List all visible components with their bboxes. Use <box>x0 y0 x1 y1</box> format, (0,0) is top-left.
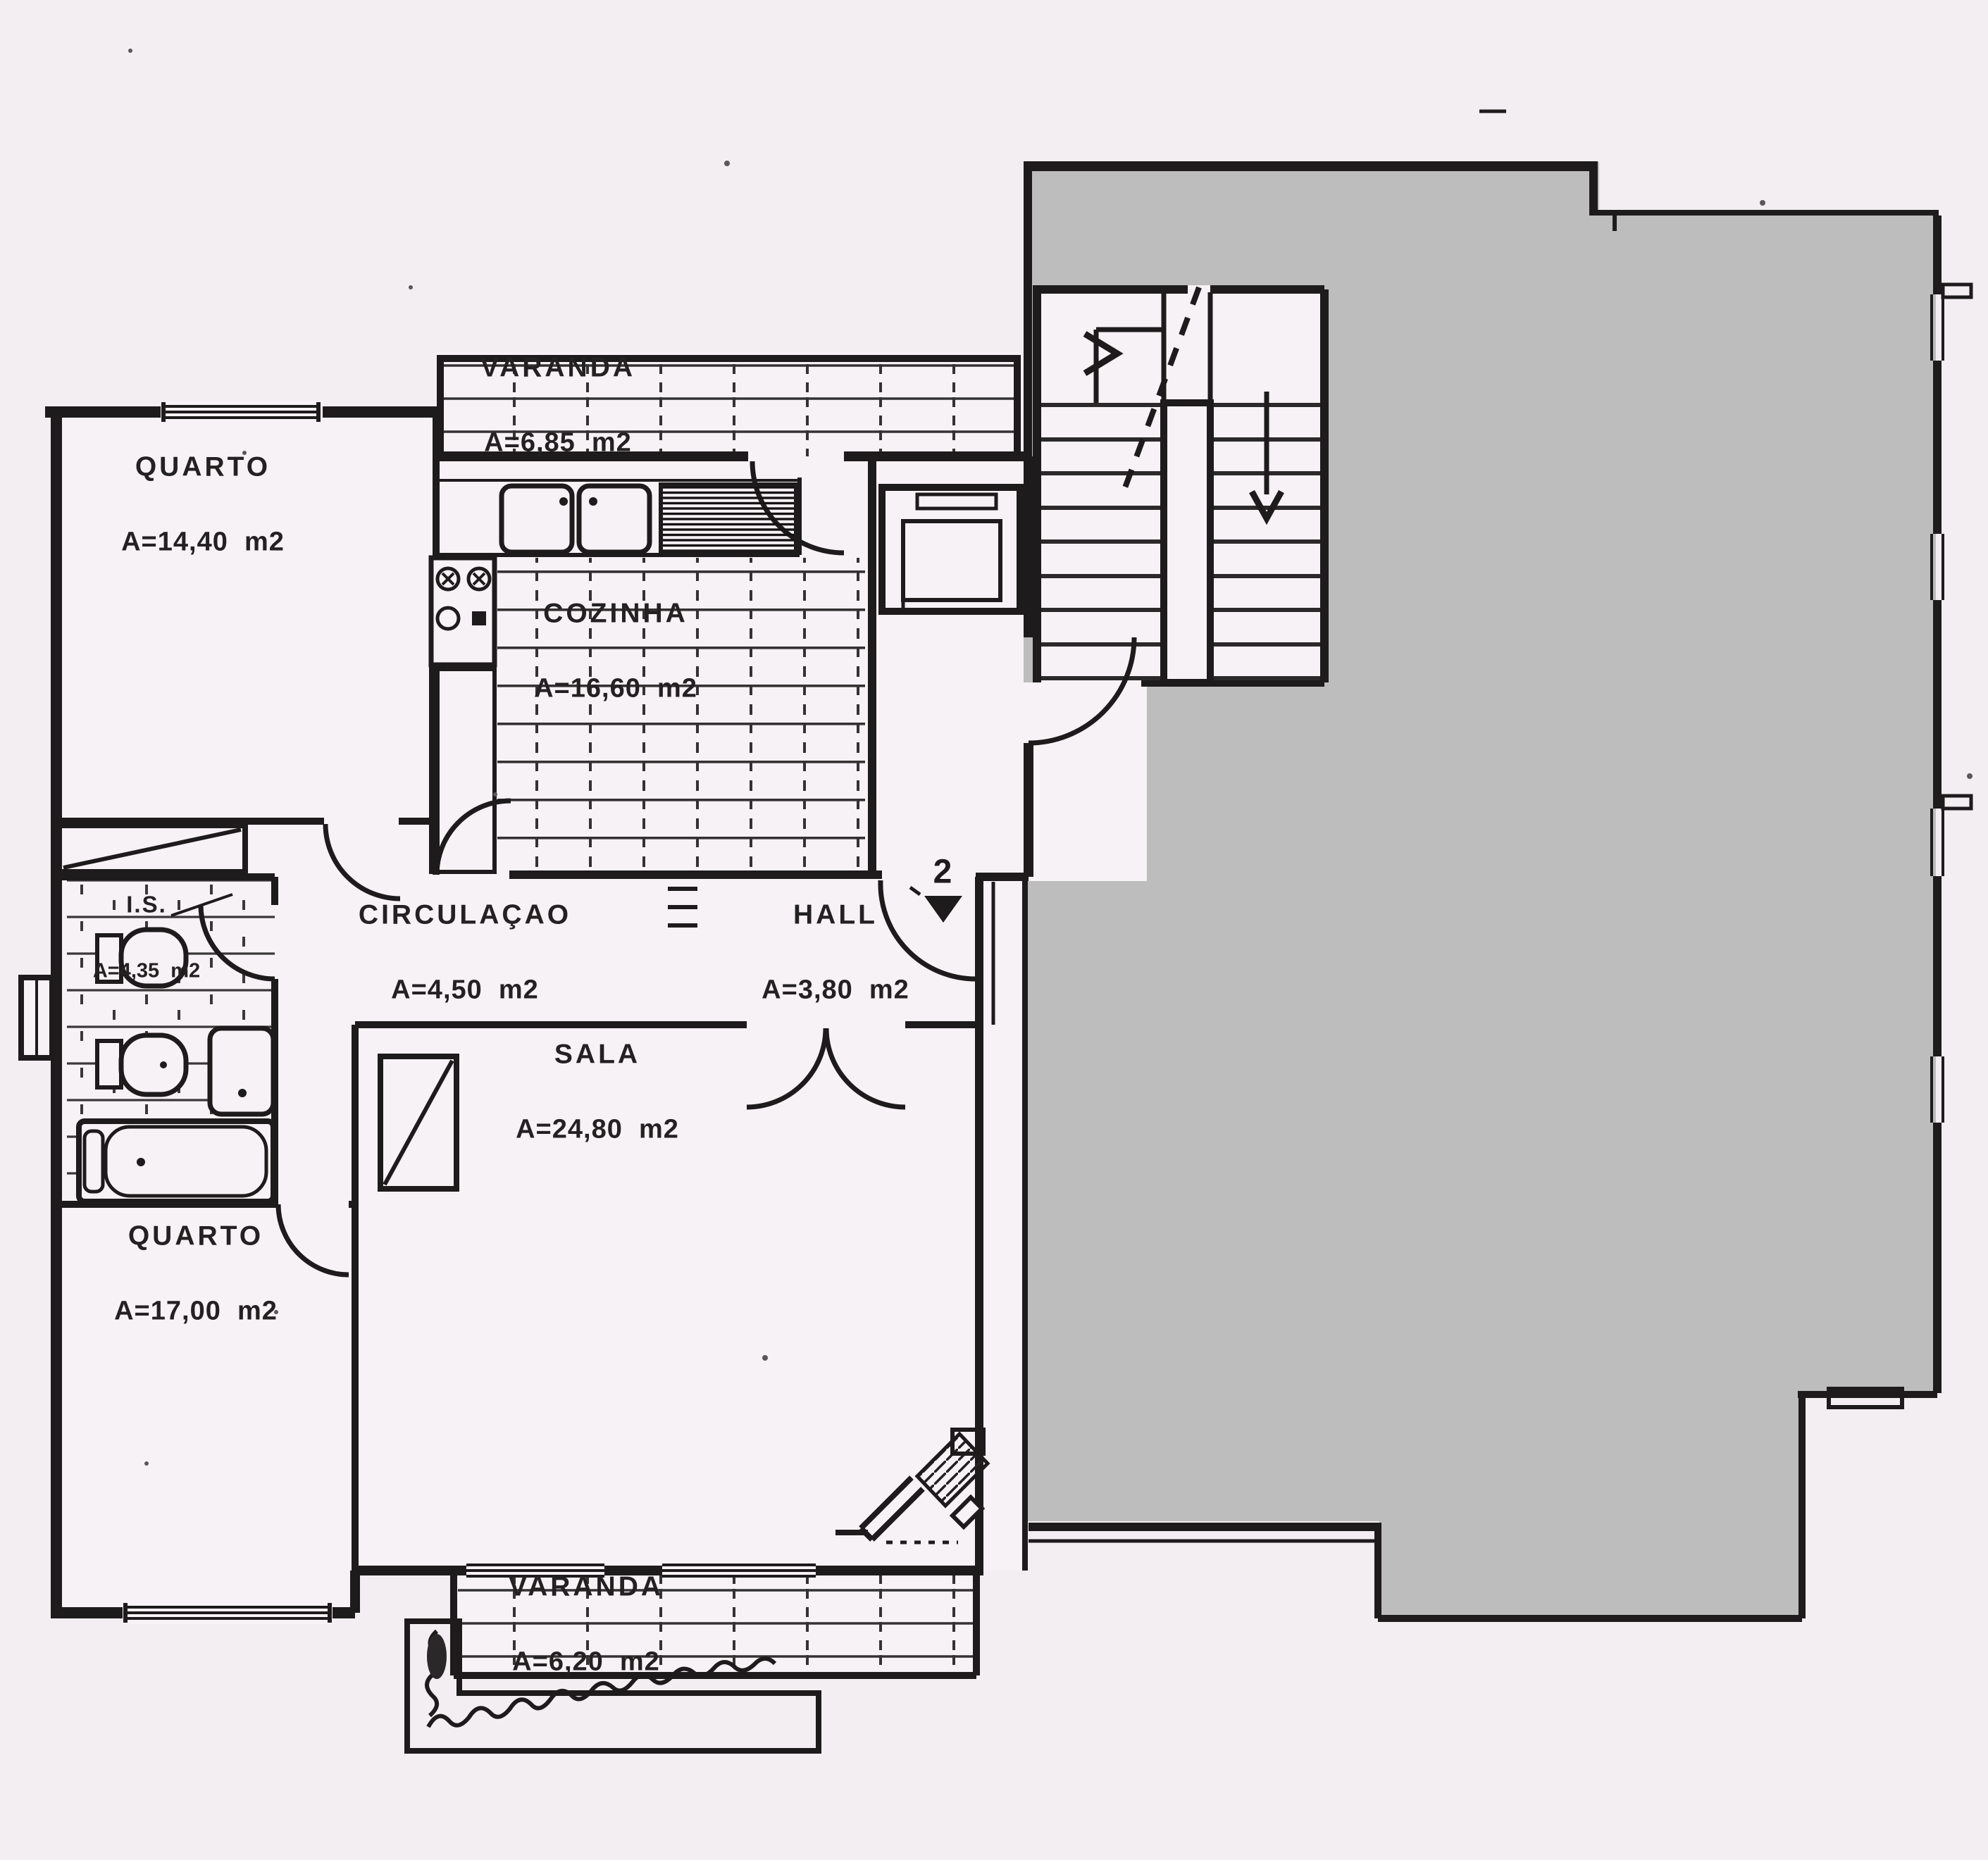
room-area: A=16,60 m2 <box>534 668 697 709</box>
room-name: HALL <box>762 894 909 936</box>
room-label-quarto-top: QUARTO A=14,40 m2 <box>121 413 285 596</box>
room-label-varanda-top: VARANDA A=6,85 m2 <box>480 313 635 497</box>
washbasin-icon <box>210 1028 273 1114</box>
room-name: QUARTO <box>114 1216 278 1257</box>
bidet-icon <box>121 1035 186 1094</box>
floor-plan-sheet: VARANDA A=6,85 m2 QUARTO A=14,40 m2 COZI… <box>0 0 1988 1860</box>
room-name: CIRCULAÇAO <box>359 894 571 936</box>
entrance-unit-number: 2 <box>933 853 952 892</box>
floor-plan-svg <box>0 0 1988 1860</box>
room-name: VARANDA <box>480 347 635 389</box>
room-name: I.S. <box>93 887 200 923</box>
room-area: A=6,20 m2 <box>509 1642 664 1682</box>
room-label-cozinha: COZINHA A=16,60 m2 <box>534 559 697 742</box>
room-label-varanda-bottom: VARANDA A=6,20 m2 <box>509 1533 664 1716</box>
room-name: COZINHA <box>534 593 697 635</box>
bidet-icon <box>97 1041 121 1087</box>
stair-well-core <box>1164 403 1210 682</box>
room-name: SALA <box>516 1034 679 1075</box>
room-label-hall: HALL A=3,80 m2 <box>762 861 909 1044</box>
room-label-quarto-bottom: QUARTO A=17,00 m2 <box>114 1182 278 1365</box>
room-area: A=4,35 m2 <box>93 956 200 987</box>
room-area: A=3,80 m2 <box>762 970 909 1010</box>
elevator-shaft <box>882 487 1020 611</box>
drainer-hatch <box>661 485 796 552</box>
room-name: VARANDA <box>509 1566 664 1608</box>
room-area: A=6,85 m2 <box>480 423 635 463</box>
room-area: A=24,80 m2 <box>516 1109 679 1149</box>
room-area: A=17,00 m2 <box>114 1291 278 1331</box>
room-area: A=14,40 m2 <box>121 522 285 562</box>
room-label-sala: SALA A=24,80 m2 <box>516 1000 679 1183</box>
room-label-is: I.S. A=4,35 m2 <box>93 854 200 1020</box>
room-name: QUARTO <box>121 447 285 488</box>
